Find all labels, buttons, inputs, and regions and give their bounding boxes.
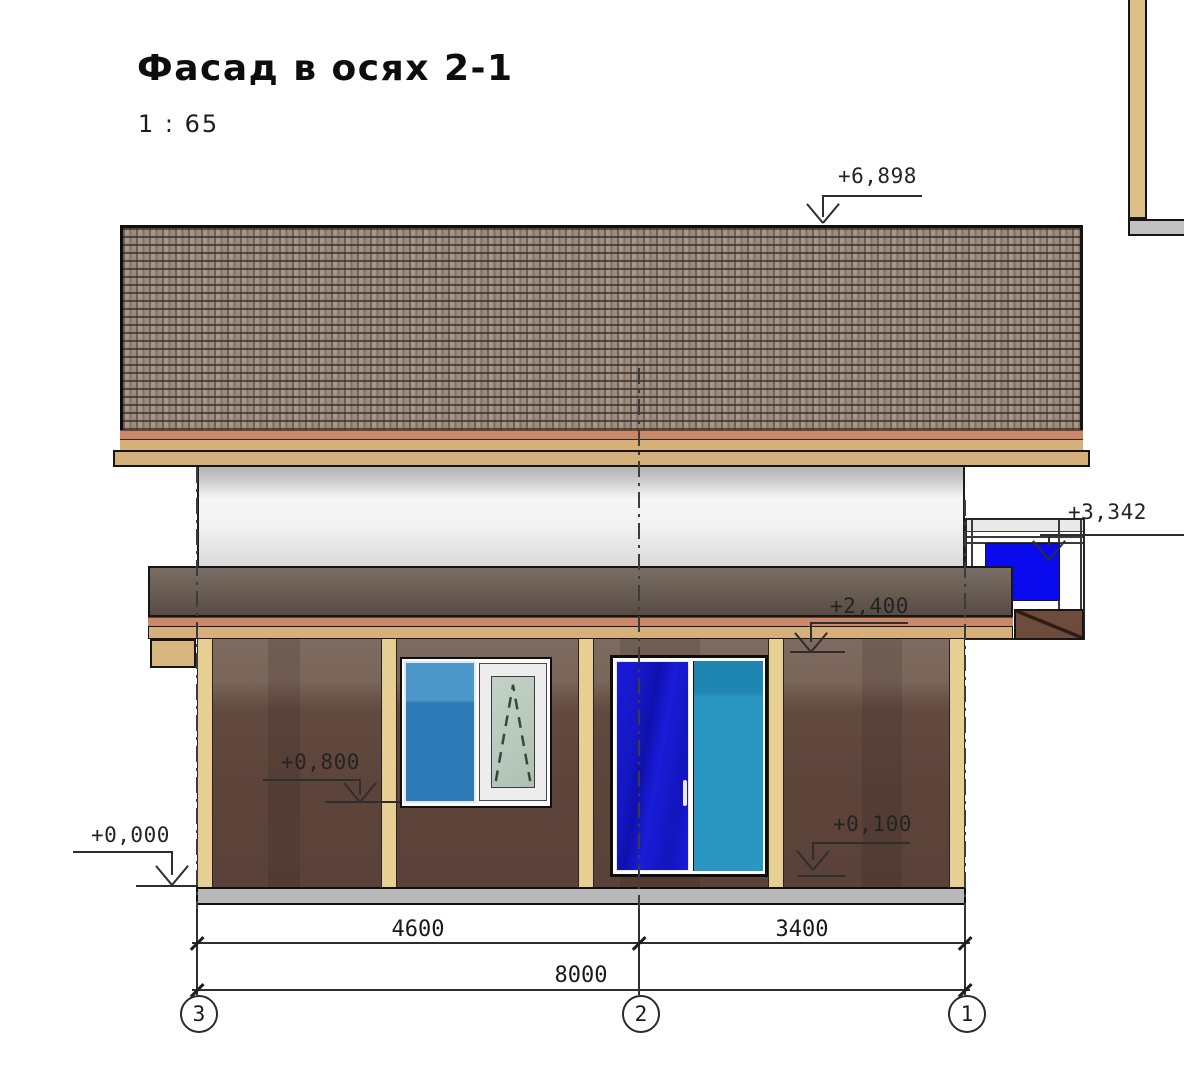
porch-rail bbox=[967, 536, 1083, 538]
adjacent-structure-slab bbox=[1128, 219, 1184, 236]
elevation-datum bbox=[325, 801, 400, 803]
sliding-door bbox=[610, 655, 768, 877]
elevation-leader bbox=[73, 851, 173, 853]
timber-post bbox=[578, 639, 594, 887]
dimension-span-right: 3400 bbox=[732, 917, 872, 942]
timber-post bbox=[949, 639, 965, 887]
elevation-label-sill: +0,800 bbox=[281, 750, 360, 774]
door-panel-deep-blue bbox=[616, 661, 689, 871]
elevation-datum bbox=[136, 885, 198, 887]
dimension-span-left: 4600 bbox=[348, 917, 488, 942]
window bbox=[400, 657, 552, 808]
porch-top-rail bbox=[967, 520, 1083, 532]
elevation-arrow bbox=[797, 626, 825, 652]
elevation-arrow bbox=[158, 859, 186, 885]
dimension-line bbox=[192, 942, 970, 944]
tilt-opening-symbol bbox=[492, 677, 534, 787]
floor-fascia bbox=[148, 626, 1013, 639]
window-fixed-pane bbox=[404, 661, 476, 803]
upper-wall bbox=[197, 467, 965, 566]
foundation-strip bbox=[196, 887, 966, 905]
axis-line-2 bbox=[638, 368, 640, 910]
axis-line-3 bbox=[196, 467, 198, 910]
axis-line-1 bbox=[964, 500, 966, 910]
elevation-label-ridge: +6,898 bbox=[838, 164, 917, 188]
elevation-datum bbox=[798, 875, 846, 877]
elevation-datum bbox=[790, 651, 845, 653]
elevation-label-threshold: +0,100 bbox=[833, 812, 912, 836]
axis-bubble-1: 1 bbox=[948, 995, 986, 1033]
wall-shadow bbox=[862, 639, 902, 887]
door-panel-teal bbox=[693, 661, 763, 871]
door-handle bbox=[683, 780, 687, 806]
elevation-label-side-window: +3,342 bbox=[1068, 500, 1147, 524]
axis-bubble-label: 1 bbox=[961, 1002, 974, 1026]
elevation-label-ground: +0,000 bbox=[91, 823, 170, 847]
axis-extension-3 bbox=[196, 910, 198, 995]
elevation-arrow bbox=[799, 844, 827, 870]
roof-batten bbox=[120, 439, 1083, 450]
axis-bubble-3: 3 bbox=[180, 995, 218, 1033]
elevation-leader bbox=[822, 195, 922, 197]
axis-bubble-2: 2 bbox=[622, 995, 660, 1033]
roof-shingles bbox=[120, 225, 1083, 430]
drawing-sheet: Фасад в осях 2-1 1 : 65 bbox=[0, 0, 1184, 1080]
dimension-line bbox=[192, 989, 970, 991]
timber-post bbox=[381, 639, 397, 887]
page-title: Фасад в осях 2-1 bbox=[137, 48, 514, 89]
elevation-arrow bbox=[1035, 534, 1063, 560]
timber-post bbox=[197, 639, 213, 887]
drawing-scale: 1 : 65 bbox=[138, 110, 219, 138]
porch-stair-wedge bbox=[1014, 609, 1084, 640]
adjacent-structure-post bbox=[1128, 0, 1147, 219]
window-casement bbox=[479, 663, 547, 801]
elevation-leader bbox=[810, 622, 908, 624]
axis-bubble-label: 2 bbox=[635, 1002, 648, 1026]
timber-post bbox=[768, 639, 784, 887]
window-glass bbox=[491, 676, 535, 788]
axis-bubble-label: 3 bbox=[193, 1002, 206, 1026]
dimension-total: 8000 bbox=[511, 963, 651, 988]
roof-fascia-board bbox=[113, 450, 1090, 467]
elevation-arrow bbox=[346, 776, 374, 802]
elevation-label-ceiling: +2,400 bbox=[830, 594, 909, 618]
eave-console bbox=[150, 639, 196, 668]
axis-extension-1 bbox=[964, 910, 966, 995]
elevation-arrow bbox=[809, 197, 837, 223]
